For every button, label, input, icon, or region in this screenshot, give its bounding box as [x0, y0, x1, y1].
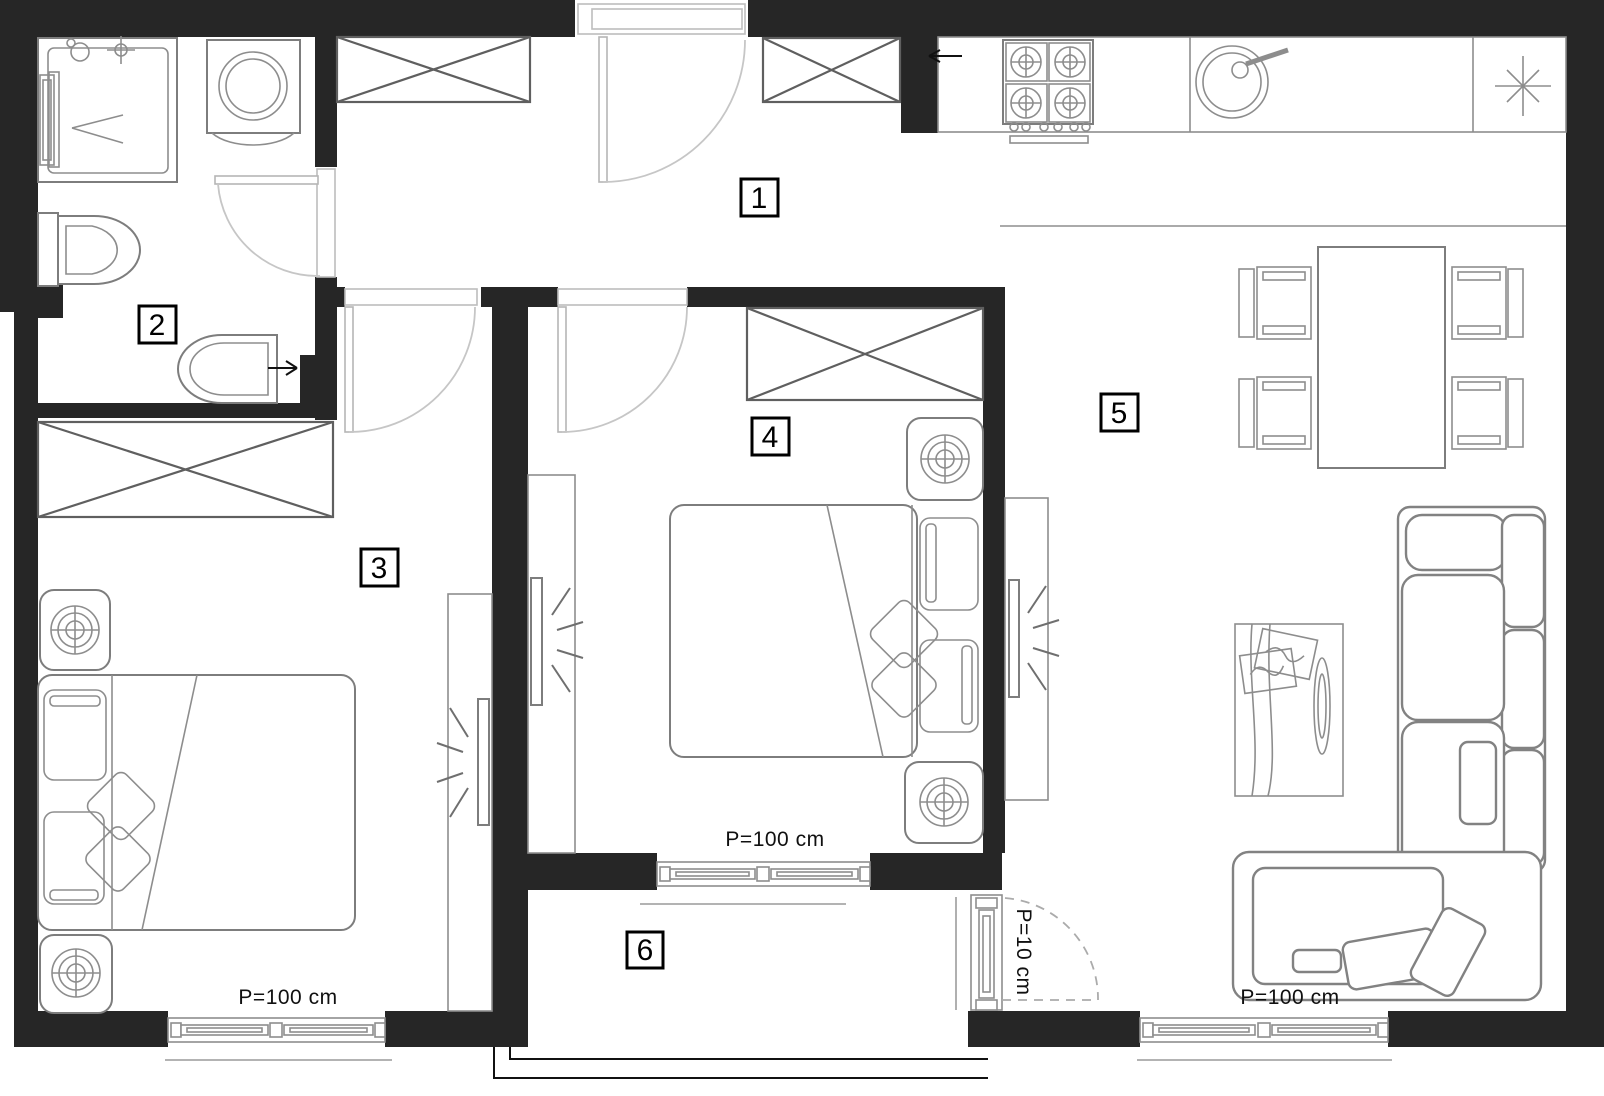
sofa: [1233, 507, 1545, 1000]
fridge-star-icon: [1495, 56, 1551, 116]
room-label-4-text: 4: [762, 421, 779, 454]
entry-door: [578, 4, 745, 182]
coffee-table: [1235, 624, 1343, 796]
room4-nightstand-top: [907, 418, 983, 500]
window-living: [1137, 1018, 1392, 1060]
room-label-5-text: 5: [1111, 397, 1128, 430]
stove-icon: [1003, 40, 1093, 143]
entry-door-arc: [603, 40, 745, 182]
room4-wardrobe: [747, 308, 983, 400]
room4-nightstand-bottom: [905, 762, 983, 843]
room-label-6-text: 6: [637, 934, 654, 967]
room-label-2: 2: [139, 306, 176, 343]
room-label-3-text: 3: [371, 552, 388, 585]
living-tv-unit: [1005, 498, 1059, 800]
room4-bed: [670, 505, 978, 757]
dining-chair-top-left: [1239, 267, 1311, 339]
room-label-4: 4: [752, 418, 789, 455]
room3-wardrobe: [38, 422, 333, 517]
room4-tv-unit: [528, 475, 583, 853]
room3-bed: [38, 675, 355, 930]
room-label-1: 1: [741, 179, 778, 216]
toilet-icon: [38, 213, 140, 286]
bathroom-door: [215, 169, 335, 277]
dim-window-room3: P=100 cm: [238, 986, 337, 1009]
balcony-edge: [494, 1047, 988, 1078]
kitchen-sink-icon: [1196, 46, 1288, 118]
room-label-3: 3: [361, 549, 398, 586]
bathroom-sink-icon: [178, 335, 297, 403]
dining-table: [1318, 247, 1445, 468]
dining-chair-bottom-left: [1239, 377, 1311, 449]
dim-window-living: P=100 cm: [1240, 986, 1339, 1009]
window-room3: [165, 1018, 392, 1060]
room-label-1-text: 1: [751, 182, 768, 215]
room3-door: [345, 289, 477, 432]
room3: [38, 422, 492, 1013]
room-label-2-text: 2: [149, 309, 166, 342]
tv-icon: [531, 578, 542, 705]
dining-chair-top-right: [1452, 267, 1523, 339]
dim-balcony-door: P=10 cm: [1012, 909, 1035, 996]
floor-plan: 1 2 3 4 5 6 P=100 cm P=100 cm P=100 cm P…: [0, 0, 1604, 1096]
entry-wardrobe-left: [337, 37, 530, 102]
shower-icon: [38, 36, 177, 182]
room4-door: [558, 289, 687, 432]
room4: [528, 308, 983, 853]
tv-icon: [478, 699, 489, 825]
entry-wardrobe-right: [763, 38, 900, 102]
room3-tv-unit: [437, 594, 492, 1011]
dining-chair-bottom-right: [1452, 377, 1523, 449]
dim-window-room4: P=100 cm: [725, 828, 824, 851]
living-room: [1005, 247, 1545, 1000]
room-label-5: 5: [1101, 394, 1138, 431]
bathroom: [38, 36, 300, 403]
room3-nightstand-top: [40, 590, 110, 670]
kitchen: [929, 37, 1566, 226]
room-label-6: 6: [627, 932, 663, 968]
washing-machine-icon: [207, 40, 300, 145]
tv-icon: [1009, 580, 1019, 697]
room3-nightstand-bottom: [40, 935, 112, 1013]
window-room4: [640, 862, 870, 904]
